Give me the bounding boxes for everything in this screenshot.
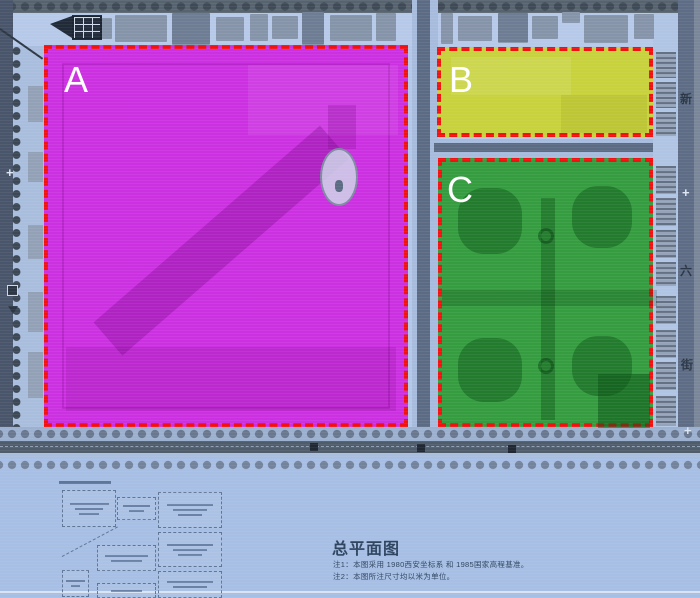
zone-a-label: A [64,62,88,98]
plaza-detail [335,180,343,192]
keyplan-parcel-box [62,490,116,527]
survey-cross-icon: + [6,166,14,179]
tower-block [656,52,676,78]
tower-block [656,112,676,136]
tower-block [656,198,676,226]
landmark-building [72,15,102,40]
trees-left [9,13,24,427]
building-block [172,13,210,44]
building-block [28,225,43,259]
plan-note-1: 注1：本图采用 1980西安坐标系 和 1985国家高程基准。 [333,559,529,570]
keyplan-header-text [59,481,111,484]
building-block [28,152,43,182]
building-block [458,16,492,40]
zone-b-overlay[interactable]: B [437,47,653,137]
zone-a-shading [328,105,356,149]
zone-b-label: B [449,62,473,98]
building-block [250,14,268,40]
zone-b-shading [561,95,647,133]
zone-a-shading [66,347,396,411]
building-block [562,12,580,22]
keyplan-parcel-box [158,532,222,567]
keyplan-parcel-box [158,492,222,528]
survey-cross-icon: + [682,186,690,199]
residential-cluster [572,186,632,248]
plan-note-2: 注2：本图所注尺寸均以米为单位。 [333,571,454,582]
green-parcel [598,374,650,428]
keyplan-parcel-box [97,583,156,598]
tower-block [656,166,676,194]
building-block [28,352,43,398]
road-marking [508,445,516,453]
zone-c-label: C [447,172,473,208]
tower-block [656,330,676,358]
north-arrow-icon [50,16,72,38]
zone-a-shading [248,65,398,135]
trees-row-lower [0,458,700,472]
road-center-vertical-lane [417,0,430,441]
building-block [532,16,558,38]
map-symbol-triangle [8,306,18,314]
keyplan-parcel-box [97,545,156,571]
internal-road [442,290,657,306]
courtyard-ring [538,228,554,244]
tower-block [656,396,676,426]
road-bottom [0,441,700,453]
tower-block [656,296,676,324]
building-block [28,292,43,332]
plan-title: 总平面图 [332,535,400,559]
tower-block [656,82,676,108]
building-block [28,86,43,122]
tower-block [656,262,676,286]
building-block [302,12,324,44]
street-name-char: 六 [680,262,692,279]
building-block [216,17,244,40]
residential-cluster [458,338,522,402]
road-top [0,0,700,13]
street-name-char: 街 [681,356,693,373]
road-marking [417,444,425,452]
circular-plaza [320,148,358,206]
courtyard-ring [538,358,554,374]
keyplan-parcel-box [158,571,222,598]
tower-block [656,362,676,390]
zone-c-overlay[interactable]: C [438,158,653,427]
survey-cross-icon: + [684,424,692,437]
keyplan-parcel-box [117,497,156,520]
road-right-edge [694,0,700,458]
street-name-char: 新 [680,90,692,107]
building-block [634,14,654,38]
road-marking [310,443,318,451]
building-block [115,15,167,41]
building-block [441,13,453,43]
road-mid-horizontal-lane [434,143,680,152]
building-block [584,15,628,42]
building-block [498,13,528,42]
building-block [376,13,396,40]
tower-block [656,230,676,258]
building-block [330,15,372,40]
trees-row-upper [0,427,700,441]
map-symbol-square [7,285,18,296]
keyplan-parcel-box [62,570,89,597]
site-plan: + 新 六 街 + + A B C [0,0,700,598]
zone-a-overlay[interactable]: A [44,45,408,427]
building-block [272,16,298,38]
